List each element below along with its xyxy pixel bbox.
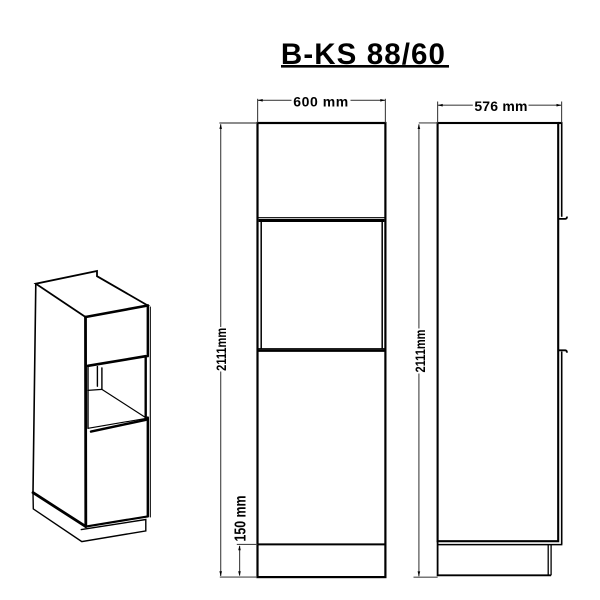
svg-text:150 mm: 150 mm [231,495,249,541]
svg-text:600 mm: 600 mm [293,93,348,109]
svg-text:2111mm: 2111mm [214,328,230,371]
svg-text:576 mm: 576 mm [474,98,527,114]
svg-text:2111mm: 2111mm [413,329,429,372]
